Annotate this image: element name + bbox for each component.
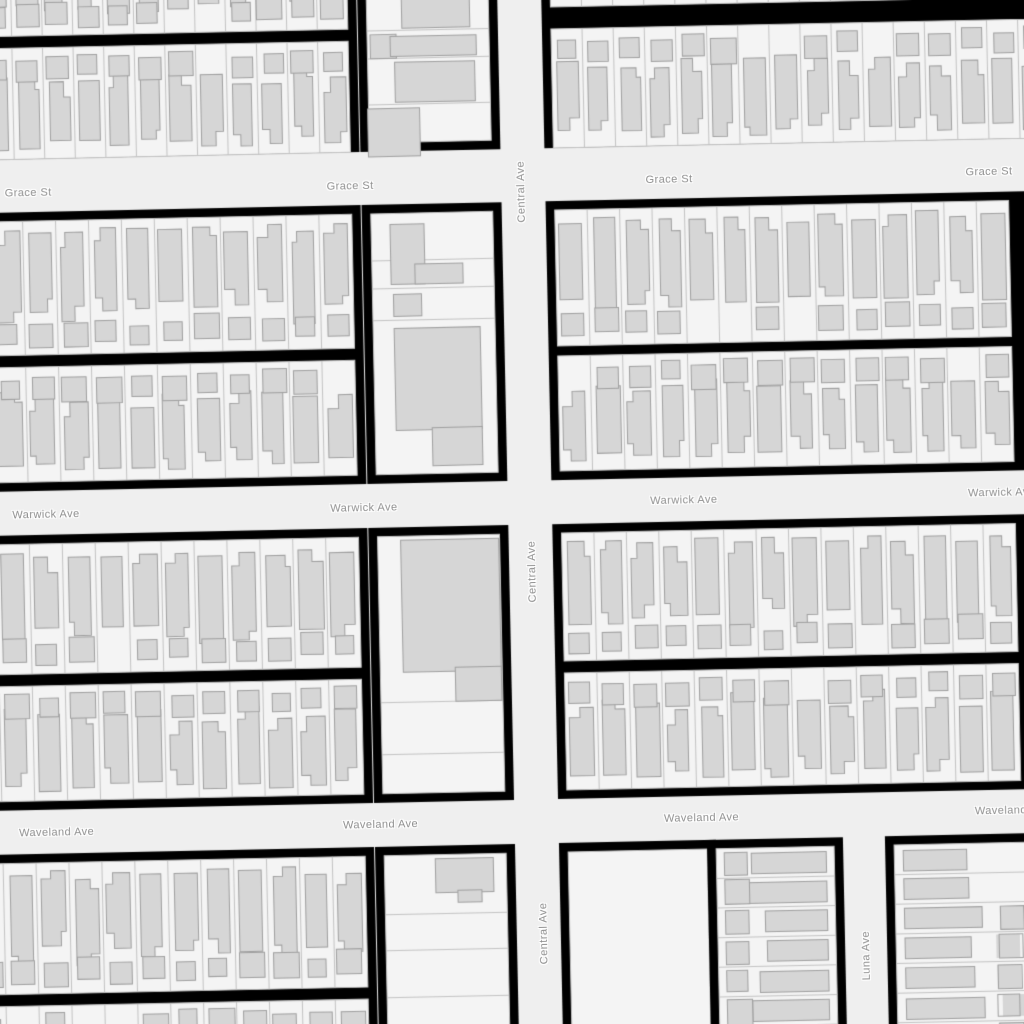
map-canvas[interactable] xyxy=(0,0,1024,1024)
map-viewport[interactable]: Grace StGrace StGrace StGrace StWarwick … xyxy=(0,0,1024,1024)
